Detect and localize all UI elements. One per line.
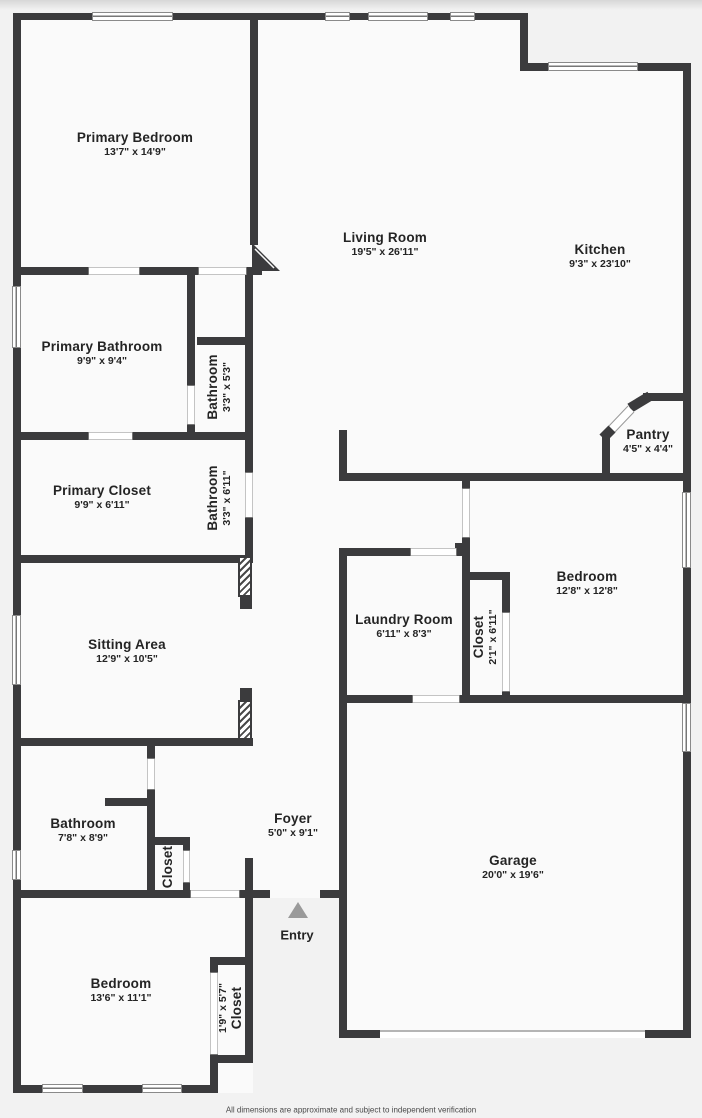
window	[42, 1084, 83, 1093]
room-label-bedroom-middle: Bedroom12'8" x 12'8"	[556, 569, 618, 597]
wall	[462, 481, 470, 488]
wall	[502, 572, 510, 612]
door-opening	[462, 488, 470, 538]
room-label-closet-foyer: Closet	[160, 846, 176, 888]
window	[682, 703, 691, 752]
door-opening	[190, 890, 240, 898]
room-label-pantry: Pantry4'5" x 4'4"	[623, 427, 673, 455]
window	[325, 12, 350, 21]
door-opening	[245, 472, 253, 518]
wall	[602, 432, 610, 481]
entry-label: Entry	[280, 928, 313, 943]
window	[682, 492, 691, 568]
window	[12, 286, 21, 348]
room-label-primary-bedroom: Primary Bedroom13'7" x 14'9"	[77, 130, 193, 158]
wall	[13, 738, 253, 746]
wall	[520, 63, 548, 71]
floor-area	[13, 703, 347, 898]
disclaimer-text: All dimensions are approximate and subje…	[226, 1106, 476, 1115]
wall	[13, 555, 253, 563]
wall	[13, 432, 253, 440]
wall	[13, 13, 21, 1093]
door-opening	[412, 695, 460, 703]
wall	[462, 538, 470, 703]
room-label-foyer: Foyer5'0" x 9'1"	[268, 811, 318, 839]
room-label-bathroom-3: Bathroom7'8" x 8'9"	[50, 816, 115, 844]
room-label-living-room: Living Room19'5" x 26'11"	[343, 230, 427, 258]
wall	[245, 267, 253, 472]
door-opening	[187, 385, 195, 425]
room-label-primary-closet: Primary Closet9'9" x 6'11"	[53, 483, 151, 511]
wall	[187, 267, 195, 385]
wall	[210, 957, 218, 972]
window	[92, 12, 173, 21]
wall	[339, 548, 347, 1038]
room-label-bathroom-2: Bathroom3'3" x 6'11"	[205, 465, 233, 530]
window	[368, 12, 428, 21]
room-label-closet-bottom: 1'9" x 5'7"Closet	[217, 983, 245, 1033]
door-opening	[183, 850, 190, 883]
wall	[13, 267, 88, 275]
floor-plan: Primary Bedroom13'7" x 14'9" Living Room…	[0, 0, 702, 1118]
wall	[250, 13, 258, 245]
wall	[643, 393, 691, 401]
wall	[147, 738, 155, 758]
window	[450, 12, 475, 21]
door-opening	[88, 432, 133, 440]
floor-area	[13, 71, 691, 703]
window	[12, 850, 21, 880]
wall	[197, 337, 245, 345]
window	[548, 62, 638, 71]
top-edge-shading	[0, 0, 702, 10]
hatched-wall-section	[238, 556, 252, 597]
hatched-wall-section	[238, 700, 252, 740]
floor-area	[13, 13, 528, 71]
door-opening	[88, 267, 140, 275]
room-label-garage: Garage20'0" x 19'6"	[482, 853, 544, 881]
window	[12, 615, 21, 685]
wall	[105, 798, 155, 806]
wall	[13, 890, 190, 898]
room-label-kitchen: Kitchen9'3" x 23'10"	[569, 242, 631, 270]
room-label-closet-middle: Closet2'1" x 6'11"	[471, 609, 499, 664]
wall	[339, 695, 691, 703]
wall	[339, 473, 691, 481]
room-label-sitting-area: Sitting Area12'9" x 10'5"	[88, 637, 166, 665]
entry-arrow-icon	[288, 902, 308, 918]
room-label-laundry-room: Laundry Room6'11" x 8'3"	[355, 612, 453, 640]
door-opening	[410, 548, 457, 556]
room-label-bathroom-1: Bathroom3'3" x 5'3"	[205, 354, 233, 419]
garage-door-opening	[380, 1030, 645, 1038]
room-label-bedroom-bottom: Bedroom13'6" x 11'1"	[90, 976, 151, 1004]
door-opening	[502, 612, 510, 692]
door-opening	[147, 758, 155, 790]
window	[142, 1084, 182, 1093]
wall	[240, 595, 252, 609]
wall	[210, 1055, 253, 1063]
door-opening	[198, 267, 247, 275]
room-label-primary-bathroom: Primary Bathroom9'9" x 9'4"	[42, 339, 163, 367]
wall	[183, 837, 190, 850]
